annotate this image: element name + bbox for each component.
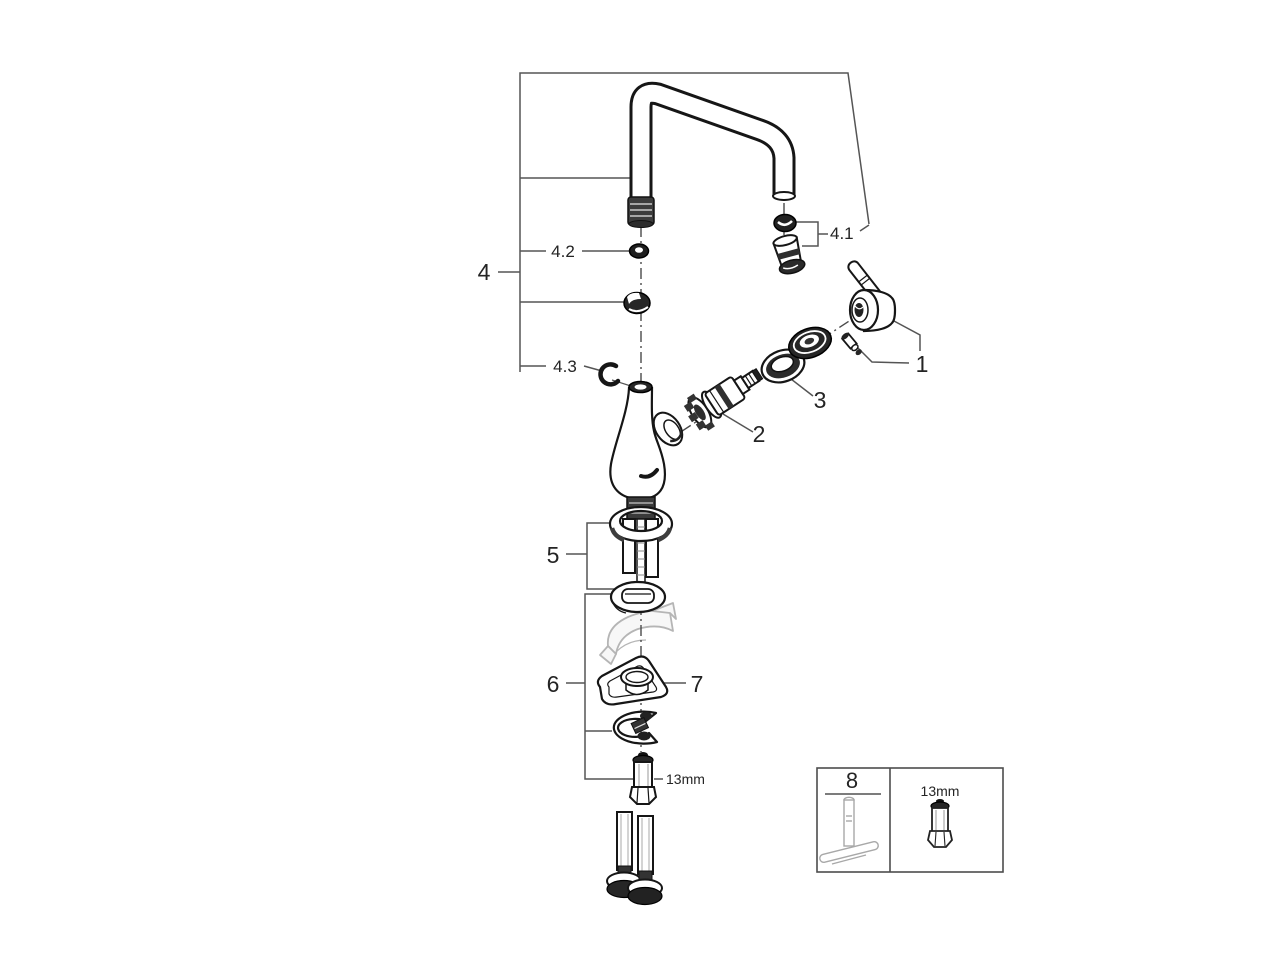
inset-size-label: 13mm (921, 783, 960, 799)
inset-box: 8 13mm (817, 768, 1003, 872)
aerator-nut (774, 215, 796, 232)
leader-2 (723, 414, 753, 432)
callout-5-label: 5 (547, 542, 560, 568)
retaining-clip-4-3 (601, 364, 618, 384)
inset-stud-icon (928, 799, 952, 847)
callout-2-label: 2 (753, 421, 766, 447)
threaded-stud (630, 752, 656, 804)
callout-4-3-label: 4.3 (553, 357, 577, 376)
callout-7-label: 7 (691, 671, 704, 697)
callout-3-label: 3 (814, 387, 827, 413)
o-ring-4-2 (630, 244, 649, 258)
base-ring-bottom (611, 582, 665, 613)
spout-outlet-rim (773, 192, 795, 200)
handle-knob-face (850, 290, 878, 330)
inset-tool-number: 8 (846, 768, 858, 793)
exploded-parts-diagram-page: 4 4.1 4.2 4.3 1 2 3 5 6 7 13mm 8 13mm (0, 0, 1276, 957)
supply-hoses (607, 812, 662, 905)
swivel-fitting (624, 293, 650, 314)
leader-3 (791, 379, 813, 396)
callout-1-label: 1 (916, 351, 929, 377)
callout-4-1-label: 4.1 (830, 224, 854, 243)
spout-threaded-end (628, 197, 654, 228)
callout-4-2-label: 4.2 (551, 242, 575, 261)
spout-tube (641, 93, 795, 203)
aerator (771, 233, 806, 276)
faucet-exploded-diagram: 4 4.1 4.2 4.3 1 2 3 5 6 7 13mm 8 13mm (0, 0, 1276, 957)
faucet-body (610, 382, 688, 500)
handle-screw (840, 331, 864, 357)
bracket-4-1 (796, 222, 828, 246)
bracket-5 (566, 523, 614, 589)
handle-assembly (840, 259, 895, 357)
callout-4-label: 4 (478, 259, 491, 285)
stud-size-label: 13mm (666, 771, 705, 787)
mounting-clamp (614, 712, 657, 744)
callout-6-label: 6 (547, 671, 560, 697)
center-axes (641, 203, 878, 752)
mounting-triangle (598, 657, 667, 705)
